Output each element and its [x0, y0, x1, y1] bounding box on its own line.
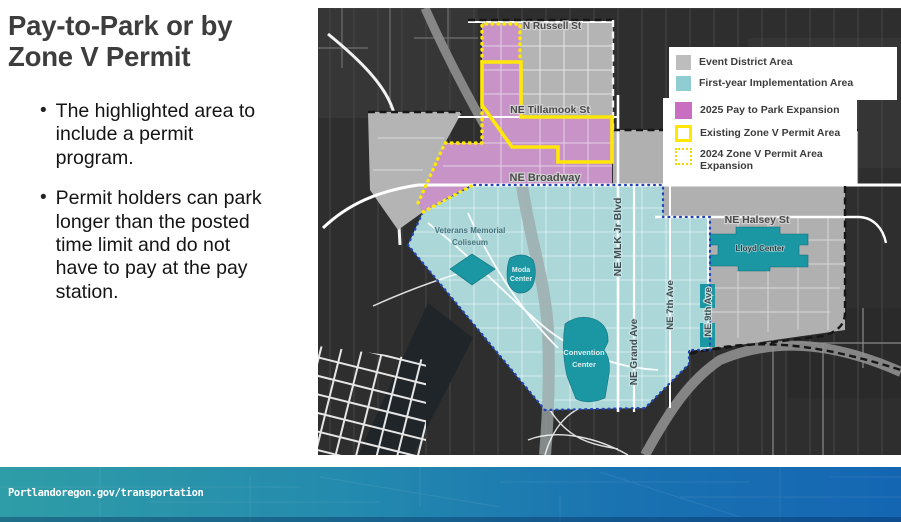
street-label-grand: NE Grand Ave [629, 318, 640, 385]
street-label-halsey: NE Halsey St [725, 214, 790, 226]
legend-swatch-pay-to-park-icon [675, 102, 692, 119]
street-label-7th: NE 7th Ave [665, 280, 676, 329]
bullet-list: The highlighted area to include a permit… [40, 100, 292, 321]
legend-swatch-existing-zone-icon [675, 125, 692, 142]
bullet-text: Permit holders can park longer than the … [56, 187, 276, 304]
street-label-mlk: NE MLK Jr Blvd [612, 198, 624, 277]
slide: Pay-to-Park or by Zone V Permit The high… [0, 0, 901, 522]
legend-label: Event District Area [699, 56, 793, 68]
map-legend-bottom: 2025 Pay to Park Expansion Existing Zone… [663, 98, 857, 186]
street-label-russell: N Russell St [523, 21, 582, 32]
moda-center-building [507, 255, 535, 293]
legend-item-event-district: Event District Area [676, 55, 893, 70]
street-label-tillamook: NE Tillamook St [510, 104, 590, 116]
footer-bottom-strip [0, 517, 901, 522]
bullet-item: Permit holders can park longer than the … [40, 187, 292, 304]
footer-bar: Portlandoregon.gov/transportation PBOT P… [0, 467, 901, 522]
bullet-text: The highlighted area to include a permit… [56, 100, 276, 170]
page-title: Pay-to-Park or by Zone V Permit [8, 10, 284, 72]
place-label-moda-1: Moda [512, 267, 530, 274]
place-label-moda-2: Center [510, 276, 532, 283]
legend-label: Existing Zone V Permit Area [700, 127, 840, 139]
legend-item-existing-zone-v: Existing Zone V Permit Area [675, 125, 853, 142]
place-label-convention-2: Center [572, 360, 596, 369]
legend-swatch-implementation-icon [676, 76, 691, 91]
legend-swatch-event-district-icon [676, 55, 691, 70]
legend-label: 2025 Pay to Park Expansion [700, 104, 839, 116]
footer-url: Portlandoregon.gov/transportation [8, 487, 203, 499]
place-label-lloyd: Lloyd Center [736, 244, 785, 253]
street-label-broadway: NE Broadway [510, 172, 582, 184]
place-label-veterans-2: Coliseum [452, 238, 488, 247]
place-label-convention-1: Convention [563, 348, 605, 357]
legend-item-2024-expansion: 2024 Zone V Permit Area Expansion [675, 148, 853, 172]
bullet-item: The highlighted area to include a permit… [40, 100, 292, 170]
map-legend-top: Event District Area First-year Implement… [669, 47, 897, 100]
place-label-veterans-1: Veterans Memorial [435, 226, 506, 235]
legend-swatch-2024-expansion-icon [675, 148, 692, 165]
legend-label: First-year Implementation Area [699, 77, 853, 89]
legend-label: 2024 Zone V Permit Area Expansion [700, 148, 853, 172]
legend-item-pay-to-park: 2025 Pay to Park Expansion [675, 102, 853, 119]
legend-item-implementation-area: First-year Implementation Area [676, 76, 893, 91]
street-label-9th: NE 9th Ave [703, 287, 714, 336]
